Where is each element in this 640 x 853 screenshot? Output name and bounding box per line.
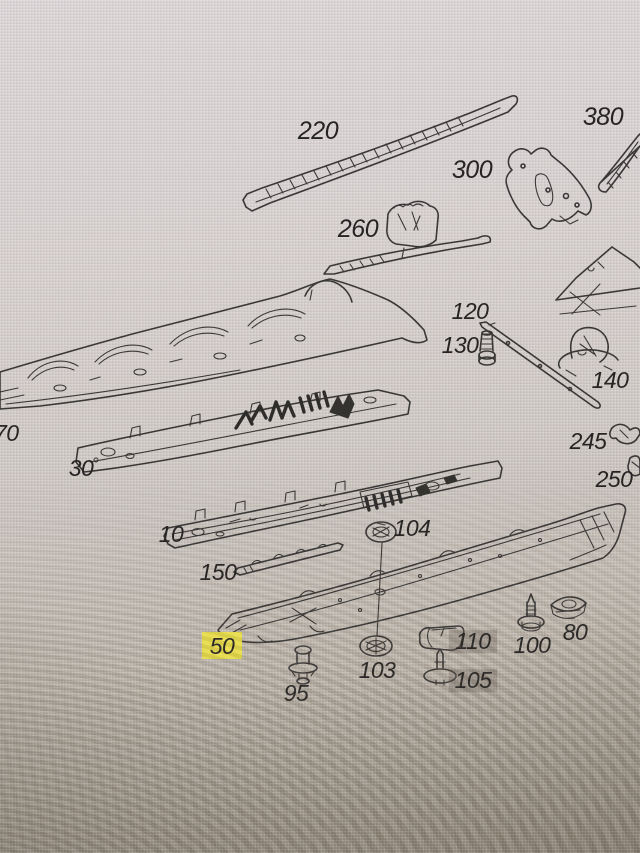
- part-104-drawing: [366, 522, 396, 542]
- parts-diagram: 220 380 300 260 120 130 140 245 250 70 3…: [0, 0, 640, 853]
- part-103-drawing: [360, 636, 392, 656]
- part-label-120[interactable]: 120: [452, 298, 490, 324]
- part-120-drawing: [480, 322, 600, 408]
- part-100-drawing: [518, 594, 544, 631]
- screen-photo: 220 380 300 260 120 130 140 245 250 70 3…: [0, 0, 640, 853]
- part-150-drawing: [234, 543, 343, 575]
- part-label-50-selected[interactable]: 50: [210, 633, 235, 659]
- part-label-103[interactable]: 103: [359, 657, 397, 683]
- part-380-drawing: [599, 134, 640, 192]
- part-label-95[interactable]: 95: [284, 680, 309, 706]
- part-10-drawing: [164, 461, 502, 548]
- part-label-70[interactable]: 70: [0, 420, 19, 446]
- part-label-110[interactable]: 110: [455, 628, 491, 654]
- part-95-drawing: [289, 646, 317, 684]
- part-label-80[interactable]: 80: [563, 619, 588, 645]
- part-245-drawing: [610, 424, 640, 443]
- part-label-130[interactable]: 130: [442, 332, 480, 358]
- part-bracket-right-edge-drawing: [556, 247, 640, 315]
- part-label-10[interactable]: 10: [159, 521, 184, 547]
- part-label-250[interactable]: 250: [595, 466, 634, 492]
- part-300-drawing: [506, 148, 591, 229]
- part-70-drawing: [0, 279, 427, 409]
- part-label-220[interactable]: 220: [297, 117, 339, 145]
- part-label-140[interactable]: 140: [592, 367, 630, 393]
- part-220-drawing: [243, 96, 517, 211]
- part-label-30[interactable]: 30: [69, 455, 94, 481]
- part-label-260[interactable]: 260: [337, 215, 379, 243]
- part-label-150[interactable]: 150: [200, 559, 238, 585]
- part-130-drawing: [479, 331, 495, 365]
- part-label-105[interactable]: 105: [455, 667, 493, 693]
- part-30-drawing: [76, 390, 410, 472]
- part-80-drawing: [551, 597, 586, 619]
- part-label-104[interactable]: 104: [394, 515, 431, 541]
- part-label-245[interactable]: 245: [569, 428, 608, 454]
- part-label-300[interactable]: 300: [452, 156, 493, 184]
- part-label-380[interactable]: 380: [583, 103, 624, 131]
- part-label-100[interactable]: 100: [514, 632, 552, 658]
